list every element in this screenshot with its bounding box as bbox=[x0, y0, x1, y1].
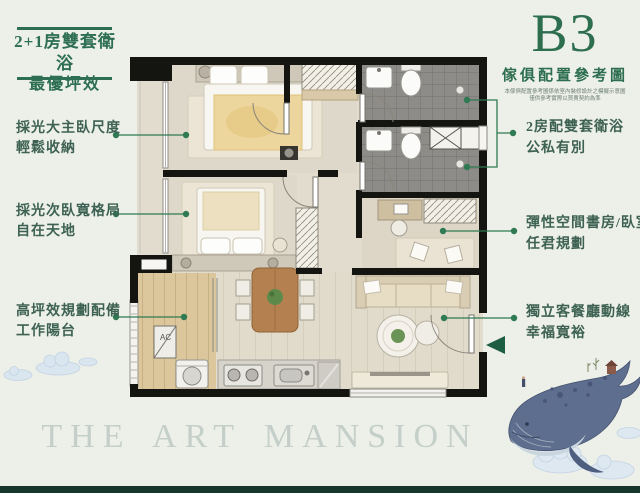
entry-door-leaf bbox=[469, 315, 474, 353]
annotation-balcony-line1: 高坪效規劃配備 bbox=[16, 302, 132, 322]
second-stool bbox=[273, 238, 287, 252]
flex-rug bbox=[396, 238, 474, 268]
bath-window bbox=[479, 126, 487, 150]
dining-chair-1 bbox=[236, 280, 250, 296]
annotation-living-line1: 獨立客餐廳動線 bbox=[526, 302, 640, 323]
annotation-bathrooms: 2房配雙套衛浴 公私有別 bbox=[526, 117, 636, 159]
tiny-house-icon bbox=[607, 366, 616, 374]
sink-basin bbox=[280, 369, 302, 382]
bath2-drain bbox=[456, 160, 464, 168]
unit-disclaimer-line1: 本傢俱配置參考圖係依室內裝修設計之模擬示意圖 bbox=[500, 89, 630, 96]
wall-master-dressing bbox=[284, 57, 290, 103]
tagline-rule-top bbox=[17, 27, 112, 30]
footer-bar bbox=[0, 486, 640, 493]
bath1-drain bbox=[456, 86, 464, 94]
wall-bath-left-1 bbox=[356, 57, 362, 94]
wall-balcony-left-lower bbox=[130, 384, 138, 397]
annotation-flex-line2: 任君規劃 bbox=[526, 234, 640, 255]
annotation-second-line2: 自在天地 bbox=[16, 222, 132, 242]
unit-code: B3 bbox=[500, 4, 630, 62]
tiny-house-roof-icon bbox=[605, 360, 618, 366]
second-wardrobe bbox=[296, 208, 318, 268]
dressing-shelf bbox=[302, 90, 358, 100]
second-pillow-right bbox=[233, 238, 262, 254]
annotation-living-dining: 獨立客餐廳動線 幸福寬裕 bbox=[526, 302, 640, 344]
master-quilt-shade bbox=[226, 106, 278, 138]
dining-chair-4 bbox=[300, 304, 314, 320]
unit-block: B3 傢俱配置參考圖 本傢俱配置參考圖係依室內裝修設計之模擬示意圖 僅供參考實際… bbox=[500, 4, 630, 103]
cloud-icon bbox=[55, 352, 69, 366]
bath2-door-leaf bbox=[360, 162, 365, 190]
tiny-person-icon bbox=[522, 379, 525, 387]
cloud-icon bbox=[44, 355, 56, 367]
clouds-left bbox=[4, 352, 97, 381]
master-pillow-right bbox=[241, 66, 268, 86]
dining-plant-leaf bbox=[270, 292, 275, 297]
floorplan: AC bbox=[130, 57, 487, 397]
dining-chair-3 bbox=[300, 280, 314, 296]
annotation-bath-line1: 2房配雙套衛浴 bbox=[526, 117, 636, 138]
bath-divider-wall bbox=[358, 120, 479, 127]
laptop bbox=[394, 204, 408, 214]
unit-disclaimer: 本傢俱配置參考圖係依室內裝修設計之模擬示意圖 僅供參考實際以買賣契約為準 bbox=[500, 89, 630, 103]
wall-corner-block bbox=[130, 57, 172, 81]
cabinet-knob-left bbox=[181, 258, 191, 268]
annotation-second-bedroom: 採光次臥寬格局 自在天地 bbox=[16, 202, 132, 242]
bath2-faucet bbox=[377, 131, 381, 135]
second-quilt bbox=[203, 192, 259, 230]
balcony-window-box bbox=[141, 259, 167, 270]
annotation-balcony-line2: 工作陽台 bbox=[16, 322, 132, 342]
burner-left bbox=[228, 369, 240, 381]
whale-eye bbox=[525, 422, 529, 426]
flex-cushion-2 bbox=[445, 245, 463, 263]
wall-bath-left-2 bbox=[356, 122, 362, 162]
wall-wardrobe-base bbox=[296, 268, 322, 274]
annotation-second-line1: 採光次臥寬格局 bbox=[16, 202, 132, 222]
sofa-pillow-left bbox=[363, 280, 381, 294]
bath2-toilet bbox=[401, 133, 421, 159]
bath1-faucet bbox=[377, 68, 381, 72]
annotation-master-line2: 輕鬆收納 bbox=[16, 139, 132, 159]
wall-balcony-left-upper bbox=[130, 273, 138, 303]
dining-plant bbox=[267, 289, 283, 305]
cloud-icon bbox=[79, 358, 97, 366]
sofa-pillow-right bbox=[445, 280, 463, 294]
tagline-rule-bottom bbox=[17, 77, 112, 80]
annotation-master-line1: 採光大主臥尺度 bbox=[16, 119, 132, 139]
tv-screen bbox=[370, 372, 430, 376]
cloud-icon bbox=[617, 428, 640, 439]
annotation-master-bedroom: 採光大主臥尺度 輕鬆收納 bbox=[16, 119, 132, 159]
sink-faucet bbox=[305, 371, 310, 376]
wall-flex-bottom bbox=[352, 268, 479, 275]
bath1-door-leaf bbox=[360, 94, 365, 122]
annotation-living-line2: 幸福寬裕 bbox=[526, 323, 640, 344]
wall-bath2-bottom bbox=[358, 192, 479, 198]
cloud-icon bbox=[10, 367, 19, 376]
plant-sprig-icon bbox=[588, 358, 599, 372]
master-pillow-left bbox=[210, 66, 237, 86]
cabinet-knob-right bbox=[268, 258, 278, 268]
duct-side-box bbox=[461, 127, 479, 149]
annotation-bath-line2: 公私有別 bbox=[526, 138, 636, 159]
master-lamp-left bbox=[199, 66, 211, 78]
flex-closet bbox=[424, 199, 476, 223]
second-pillow-left bbox=[201, 238, 230, 254]
wall-bedroom-divider bbox=[163, 170, 287, 177]
tagline-block: 2+1房雙套衛浴 最優坪效 bbox=[12, 31, 118, 95]
master-door-leaf bbox=[284, 103, 289, 134]
ac-label: AC bbox=[160, 333, 171, 342]
second-door-leaf bbox=[313, 177, 318, 207]
unit-subtitle: 傢俱配置參考圖 bbox=[500, 64, 630, 85]
annotation-flex-room: 彈性空間書房/臥室 任君規劃 bbox=[526, 213, 640, 255]
wall-top bbox=[133, 57, 487, 65]
wall-right-upper bbox=[479, 57, 487, 126]
burner-right bbox=[246, 369, 258, 381]
bath1-toilet bbox=[401, 70, 421, 96]
whale-illustration bbox=[509, 358, 640, 479]
desk-chair bbox=[391, 220, 407, 236]
wall-bedroom-divider-stub bbox=[318, 170, 338, 177]
entrance-triangle-icon bbox=[486, 336, 505, 354]
unit-disclaimer-line2: 僅供參考實際以買賣契約為準 bbox=[500, 96, 630, 103]
kitchen bbox=[218, 360, 340, 389]
cloud-icon bbox=[597, 455, 611, 469]
master-stool-top bbox=[285, 149, 294, 158]
washer-drum bbox=[183, 367, 201, 385]
coffee-table-plant bbox=[391, 329, 405, 343]
dining-chair-2 bbox=[236, 304, 250, 320]
flyer-canvas: THE ART MANSION 2+1房雙套衛浴 最優坪效 B3 傢俱配置參考圖… bbox=[0, 0, 640, 493]
annotation-balcony: 高坪效規劃配備 工作陽台 bbox=[16, 302, 132, 342]
annotation-flex-line1: 彈性空間書房/臥室 bbox=[526, 213, 640, 234]
tagline-line1: 2+1房雙套衛浴 bbox=[12, 31, 118, 75]
dressing-wardrobe bbox=[302, 64, 358, 90]
